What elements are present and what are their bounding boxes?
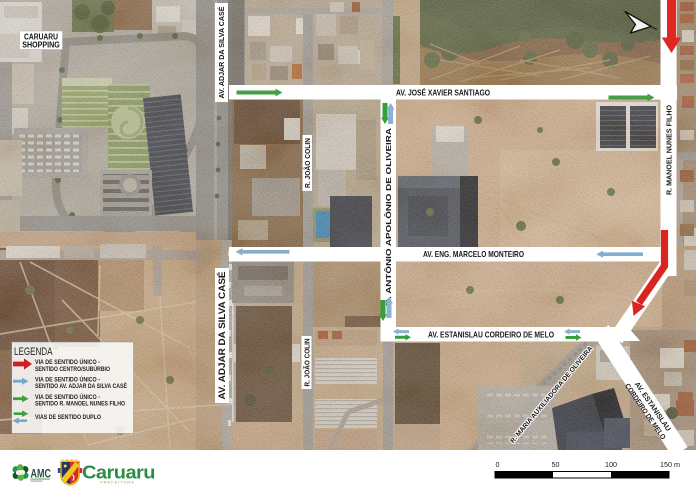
svg-text:VIA DE SENTIDO ÚNICO -: VIA DE SENTIDO ÚNICO -: [35, 359, 100, 366]
svg-text:VIAS DE SENTIDO DUPLO: VIAS DE SENTIDO DUPLO: [35, 415, 101, 421]
svg-text:LEGENDA: LEGENDA: [14, 346, 53, 358]
svg-text:SENTIDO CENTRO/SUBÚRBIO: SENTIDO CENTRO/SUBÚRBIO: [35, 366, 110, 373]
svg-text:100: 100: [605, 460, 617, 469]
svg-text:R. JOÃO COLIN: R. JOÃO COLIN: [303, 339, 312, 387]
svg-text:PREFEITURA: PREFEITURA: [100, 479, 134, 484]
svg-text:SENTIDO AV. ADJAR DA SILVA CAS: SENTIDO AV. ADJAR DA SILVA CASÉ: [35, 382, 127, 390]
svg-text:150 m: 150 m: [660, 460, 680, 469]
svg-text:50: 50: [552, 460, 560, 469]
svg-text:VIA DE SENTIDO ÚNICO -: VIA DE SENTIDO ÚNICO -: [35, 394, 100, 401]
svg-text:R. ANTÔNIO APOLÔNIO DE OLIVEIR: R. ANTÔNIO APOLÔNIO DE OLIVEIRA: [384, 128, 393, 306]
svg-text:R. JOÃO COLIN: R. JOÃO COLIN: [303, 138, 312, 188]
svg-text:AV. ENG. MARCELO MONTEIRO: AV. ENG. MARCELO MONTEIRO: [423, 250, 525, 259]
svg-text:0: 0: [496, 460, 500, 469]
svg-text:SHOPPING: SHOPPING: [22, 41, 60, 50]
svg-text:AV. ADJAR DA SILVA CASÉ: AV. ADJAR DA SILVA CASÉ: [217, 6, 226, 98]
svg-text:AV. ESTANISLAU CORDEIRO DE MEL: AV. ESTANISLAU CORDEIRO DE MELO: [428, 331, 555, 340]
svg-text:R. MANOEL NUNES FILHO: R. MANOEL NUNES FILHO: [665, 105, 674, 195]
svg-text:SENTIDO R. MANOEL NUNES FILHO: SENTIDO R. MANOEL NUNES FILHO: [35, 402, 125, 408]
svg-text:AV. ADJAR DA SILVA CASÉ: AV. ADJAR DA SILVA CASÉ: [216, 272, 227, 400]
svg-text:VIA DE SENTIDO ÚNICO -: VIA DE SENTIDO ÚNICO -: [35, 377, 100, 384]
svg-text:AV. JOSÉ XAVIER SANTIAGO: AV. JOSÉ XAVIER SANTIAGO: [396, 88, 491, 98]
